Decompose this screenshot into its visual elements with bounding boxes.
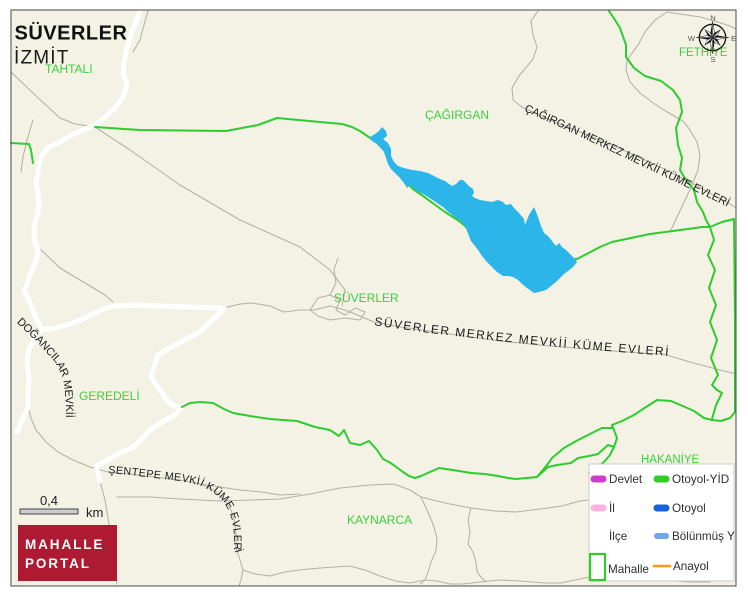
svg-text:N: N [710, 14, 715, 23]
svg-text:Devlet: Devlet [609, 473, 643, 486]
svg-text:Bölünmüş Y: Bölünmüş Y [672, 530, 735, 543]
svg-text:İl: İl [609, 502, 615, 515]
svg-text:Otoyol: Otoyol [672, 502, 706, 515]
svg-text:MAHALLE: MAHALLE [25, 537, 104, 552]
svg-text:0,4: 0,4 [40, 493, 58, 508]
svg-text:İlçe: İlçe [609, 530, 627, 543]
svg-text:ÇAĞIRGAN: ÇAĞIRGAN [425, 107, 489, 122]
svg-text:E: E [731, 34, 736, 43]
svg-text:SÜVERLER: SÜVERLER [334, 291, 399, 305]
svg-text:SÜVERLER: SÜVERLER [15, 22, 128, 45]
svg-text:Mahalle: Mahalle [608, 563, 649, 576]
svg-text:PORTAL: PORTAL [25, 556, 91, 571]
svg-text:İZMİT: İZMİT [14, 48, 70, 69]
svg-text:GEREDELİ: GEREDELİ [79, 389, 140, 403]
svg-text:KAYNARCA: KAYNARCA [347, 513, 412, 527]
svg-text:Anayol: Anayol [673, 560, 709, 573]
svg-text:Otoyol-YİD: Otoyol-YİD [672, 473, 729, 486]
svg-text:S: S [710, 55, 715, 64]
svg-text:W: W [688, 34, 696, 43]
svg-text:km: km [86, 505, 103, 520]
